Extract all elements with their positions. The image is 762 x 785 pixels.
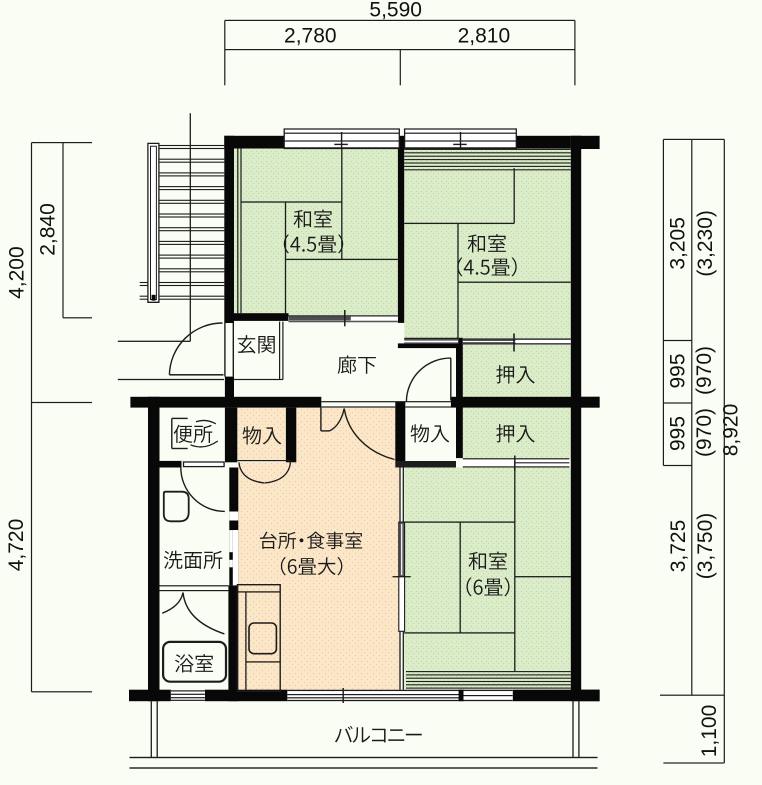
svg-text:3,205: 3,205: [666, 217, 689, 270]
svg-text:995: 995: [666, 416, 689, 451]
svg-text:(970): (970): [693, 408, 716, 457]
svg-text:2,810: 2,810: [458, 25, 511, 48]
svg-text:2,840: 2,840: [37, 203, 60, 256]
svg-text:(970): (970): [693, 346, 716, 395]
svg-text:8,920: 8,920: [720, 404, 743, 457]
svg-text:995: 995: [666, 353, 689, 388]
svg-text:4,200: 4,200: [6, 246, 29, 299]
svg-text:3,725: 3,725: [667, 520, 690, 573]
svg-text:(3,750): (3,750): [694, 513, 717, 580]
svg-text:2,780: 2,780: [284, 25, 337, 48]
svg-text:4,720: 4,720: [5, 519, 28, 572]
svg-text:(3,230): (3,230): [694, 210, 717, 277]
svg-text:1,100: 1,100: [698, 705, 721, 758]
svg-text:5,590: 5,590: [369, 0, 422, 22]
